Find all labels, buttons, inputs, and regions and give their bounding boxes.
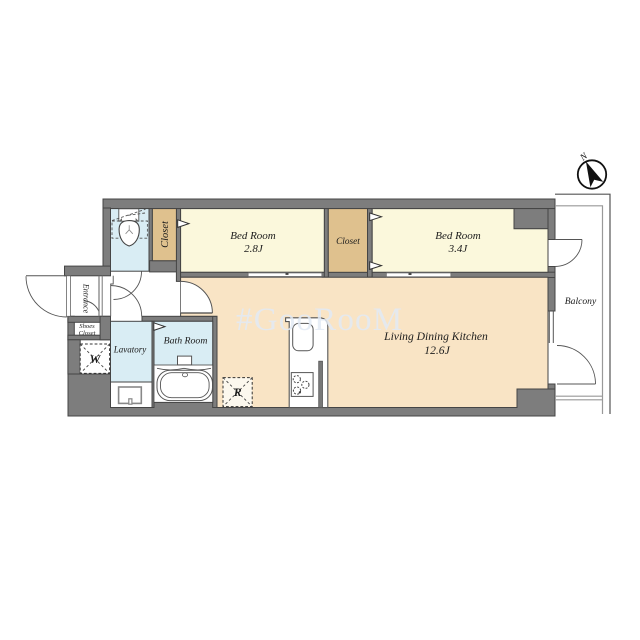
svg-text:Balcony: Balcony bbox=[565, 296, 597, 307]
svg-text:Shoes: Shoes bbox=[79, 323, 95, 330]
svg-text:W: W bbox=[90, 352, 102, 366]
svg-text:Closet: Closet bbox=[160, 220, 171, 248]
svg-text:Bed Room: Bed Room bbox=[435, 230, 481, 242]
svg-text:Bed Room: Bed Room bbox=[230, 230, 276, 242]
svg-text:3.4J: 3.4J bbox=[448, 243, 469, 255]
svg-text:2.8J: 2.8J bbox=[244, 243, 264, 255]
svg-text:Bath Room: Bath Room bbox=[164, 336, 208, 347]
svg-text:Closet: Closet bbox=[336, 237, 360, 247]
svg-text:R: R bbox=[233, 387, 242, 399]
svg-text:Lavatory: Lavatory bbox=[113, 345, 147, 355]
svg-text:Closet: Closet bbox=[79, 330, 96, 337]
svg-text:12.6J: 12.6J bbox=[424, 344, 450, 357]
svg-text:Entrance: Entrance bbox=[82, 283, 91, 314]
svg-text:#GooRooM: #GooRooM bbox=[236, 302, 403, 338]
